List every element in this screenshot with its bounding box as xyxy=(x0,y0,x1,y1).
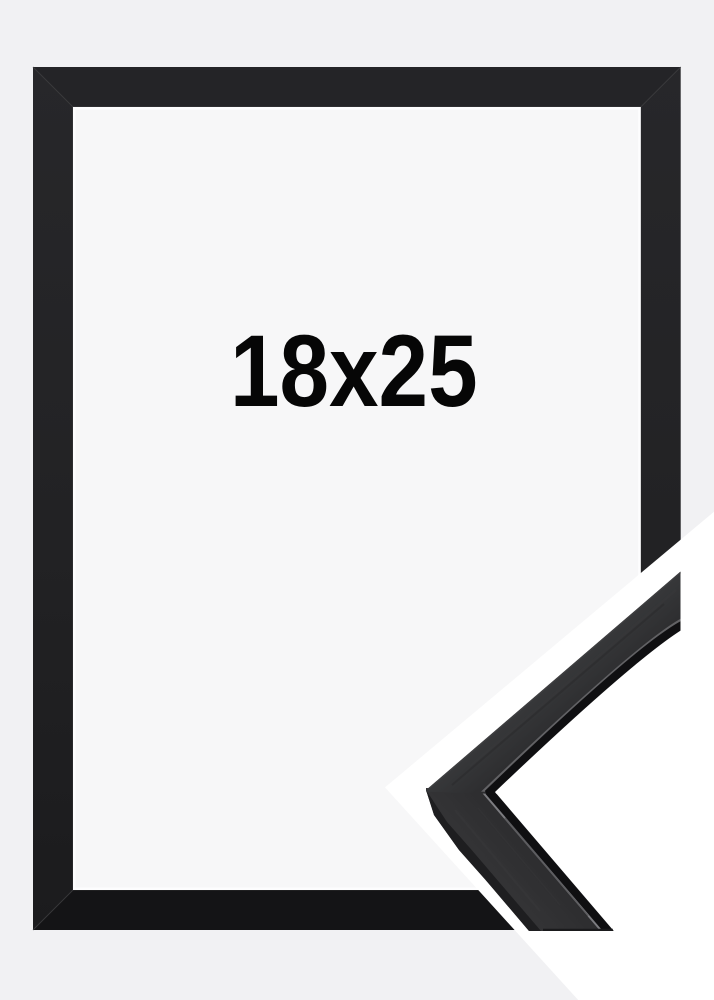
svg-text:18x25: 18x25 xyxy=(230,314,478,428)
